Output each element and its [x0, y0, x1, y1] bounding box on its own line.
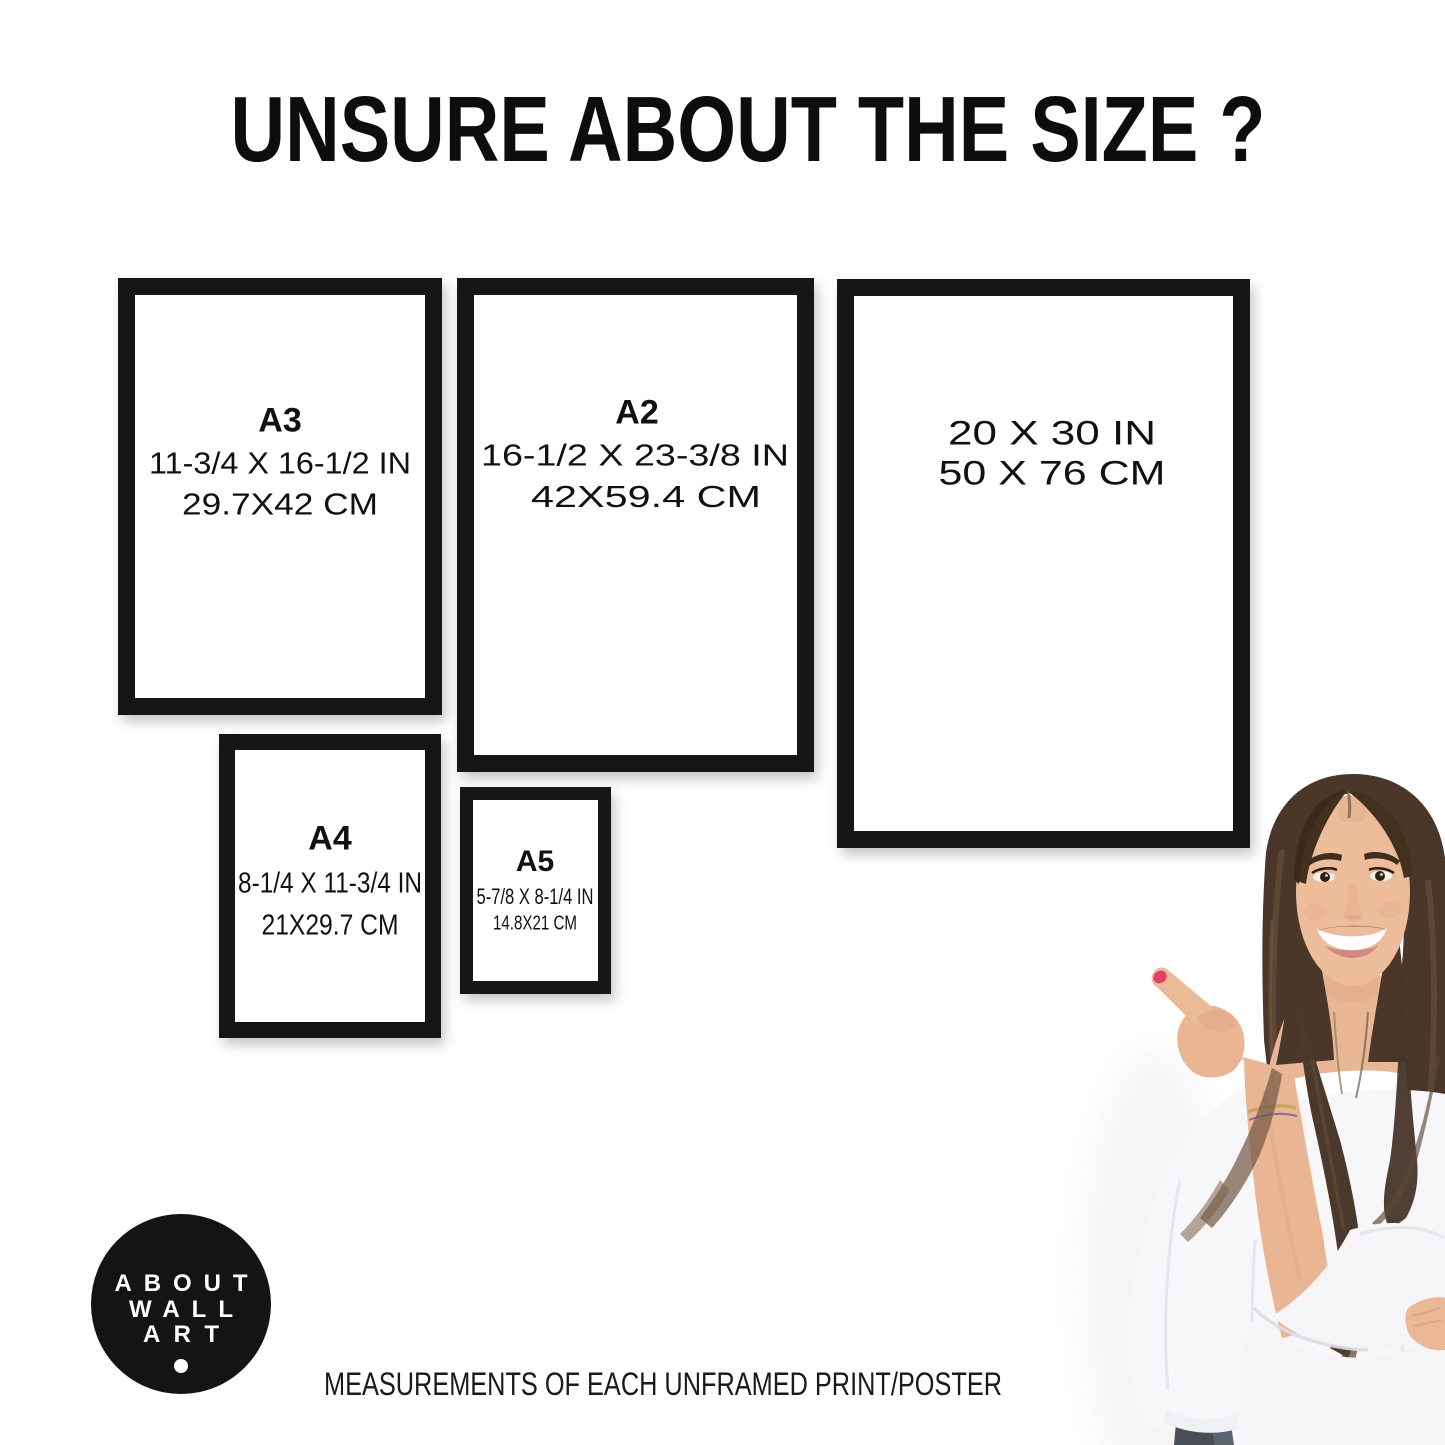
svg-text:29.7X42 CM: 29.7X42 CM — [182, 486, 378, 521]
svg-text:UNSURE ABOUT THE SIZE ?: UNSURE ABOUT THE SIZE ? — [231, 77, 1266, 181]
svg-text:11-3/4 X 16-1/2 IN: 11-3/4 X 16-1/2 IN — [149, 445, 411, 480]
svg-text:ART: ART — [143, 1321, 219, 1348]
svg-text:14.8X21 CM: 14.8X21 CM — [493, 912, 577, 934]
svg-text:5-7/8 X 8-1/4 IN: 5-7/8 X 8-1/4 IN — [477, 884, 594, 909]
svg-text:A5: A5 — [516, 845, 554, 878]
svg-text:50 X 76 CM: 50 X 76 CM — [939, 455, 1166, 493]
svg-text:A2: A2 — [615, 394, 658, 432]
svg-text:16-1/2 X 23-3/8 IN: 16-1/2 X 23-3/8 IN — [481, 437, 789, 472]
svg-text:20 X 30 IN: 20 X 30 IN — [948, 415, 1156, 453]
svg-text:42X59.4 CM: 42X59.4 CM — [531, 479, 761, 514]
svg-text:8-1/4 X 11-3/4 IN: 8-1/4 X 11-3/4 IN — [238, 868, 422, 900]
svg-text:21X29.7 CM: 21X29.7 CM — [262, 910, 399, 942]
svg-text:A3: A3 — [258, 402, 301, 440]
svg-text:A4: A4 — [308, 820, 352, 858]
svg-text:MEASUREMENTS OF EACH UNFRAMED: MEASUREMENTS OF EACH UNFRAMED PRINT/POST… — [324, 1366, 1002, 1402]
